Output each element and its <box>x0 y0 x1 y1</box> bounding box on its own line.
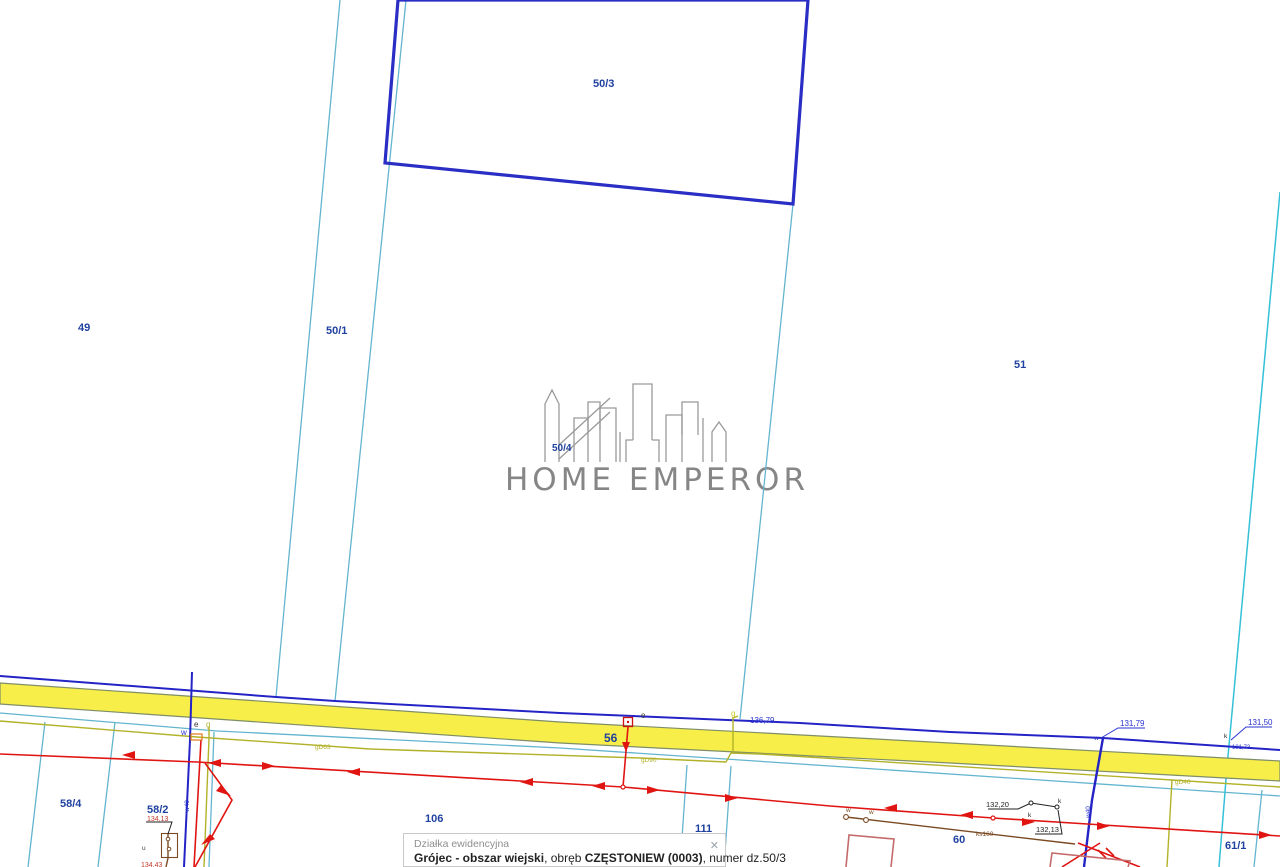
tick-w-sewer-2: w <box>868 809 874 816</box>
tick-k-1: k <box>1028 812 1032 819</box>
parcel-label-51: 51 <box>1014 359 1026 371</box>
parcel-label-61-1: 61/1 <box>1225 840 1246 852</box>
popup-municipality: Grójec - obszar wiejski <box>414 851 544 865</box>
measure-132-13: 132,13 <box>1036 825 1059 834</box>
survey-leaders <box>146 803 1062 834</box>
sewer-line-label: ks160 <box>976 831 994 838</box>
tick-g-left: g <box>206 720 210 729</box>
parcel-label-58-2: 58/2 <box>147 804 168 816</box>
parcel-label-50-3: 50/3 <box>593 78 614 90</box>
gas-line-label-1: gD63 <box>315 744 331 751</box>
measure-131-73: 131,73 <box>1232 745 1251 751</box>
parcel-label-49: 49 <box>78 322 90 334</box>
gas-line-label-3: gD40 <box>1175 779 1191 786</box>
tick-k-2: k <box>1058 798 1062 805</box>
popup-title: Działka ewidencyjna <box>414 838 715 851</box>
tick-k-3: k <box>1224 733 1228 740</box>
popup-sep-obreb: , obręb <box>544 851 585 865</box>
parcel-label-50-4: 50/4 <box>552 443 572 454</box>
parcel-label-58-4: 58/4 <box>60 798 82 810</box>
parcel-label-106: 106 <box>425 813 443 825</box>
measure-132-20: 132,20 <box>986 800 1009 809</box>
measure-134-43: 134,43 <box>141 862 163 867</box>
popup-parcel-description: Grójec - obszar wiejski, obręb CZĘSTONIE… <box>414 851 715 866</box>
parcel-label-60: 60 <box>953 834 965 846</box>
close-icon[interactable]: ✕ <box>710 839 719 852</box>
tick-w-right: w <box>1093 735 1099 742</box>
tick-e-mid: e <box>641 711 646 720</box>
tick-w-sewer-1: w <box>845 807 851 814</box>
water-line-label-left: w40 <box>184 800 191 813</box>
selected-parcel-outline[interactable] <box>385 0 808 204</box>
measure-131-79: 131,79 <box>1120 719 1145 728</box>
blue-measure-leaders <box>1101 727 1272 740</box>
map-linework: 49 50/1 50/3 50/4 51 56 58/4 58/2 106 11… <box>0 0 1280 867</box>
water-line-label-right: w40 <box>1085 806 1092 819</box>
tick-e-left: e <box>194 720 199 729</box>
popup-obreb: CZĘSTONIEW (0003) <box>585 851 703 865</box>
measure-131-50: 131,50 <box>1248 718 1273 727</box>
gas-line-label-2: gD90 <box>641 757 657 764</box>
parcel-label-50-1: 50/1 <box>326 325 347 337</box>
cadastral-map-viewport[interactable]: HOME EMPEROR <box>0 0 1280 867</box>
measure-134-13: 134,13 <box>147 816 169 823</box>
parcel-info-popup: Działka ewidencyjna Grójec - obszar wiej… <box>403 833 726 867</box>
measure-136-79: 136,79 <box>750 716 775 725</box>
tick-u: u <box>142 845 146 852</box>
parcel-label-56: 56 <box>604 731 618 745</box>
tick-g-mid: g <box>731 709 735 718</box>
tick-w-left: w <box>180 728 187 737</box>
popup-parcel-number: , numer dz.50/3 <box>703 851 786 865</box>
